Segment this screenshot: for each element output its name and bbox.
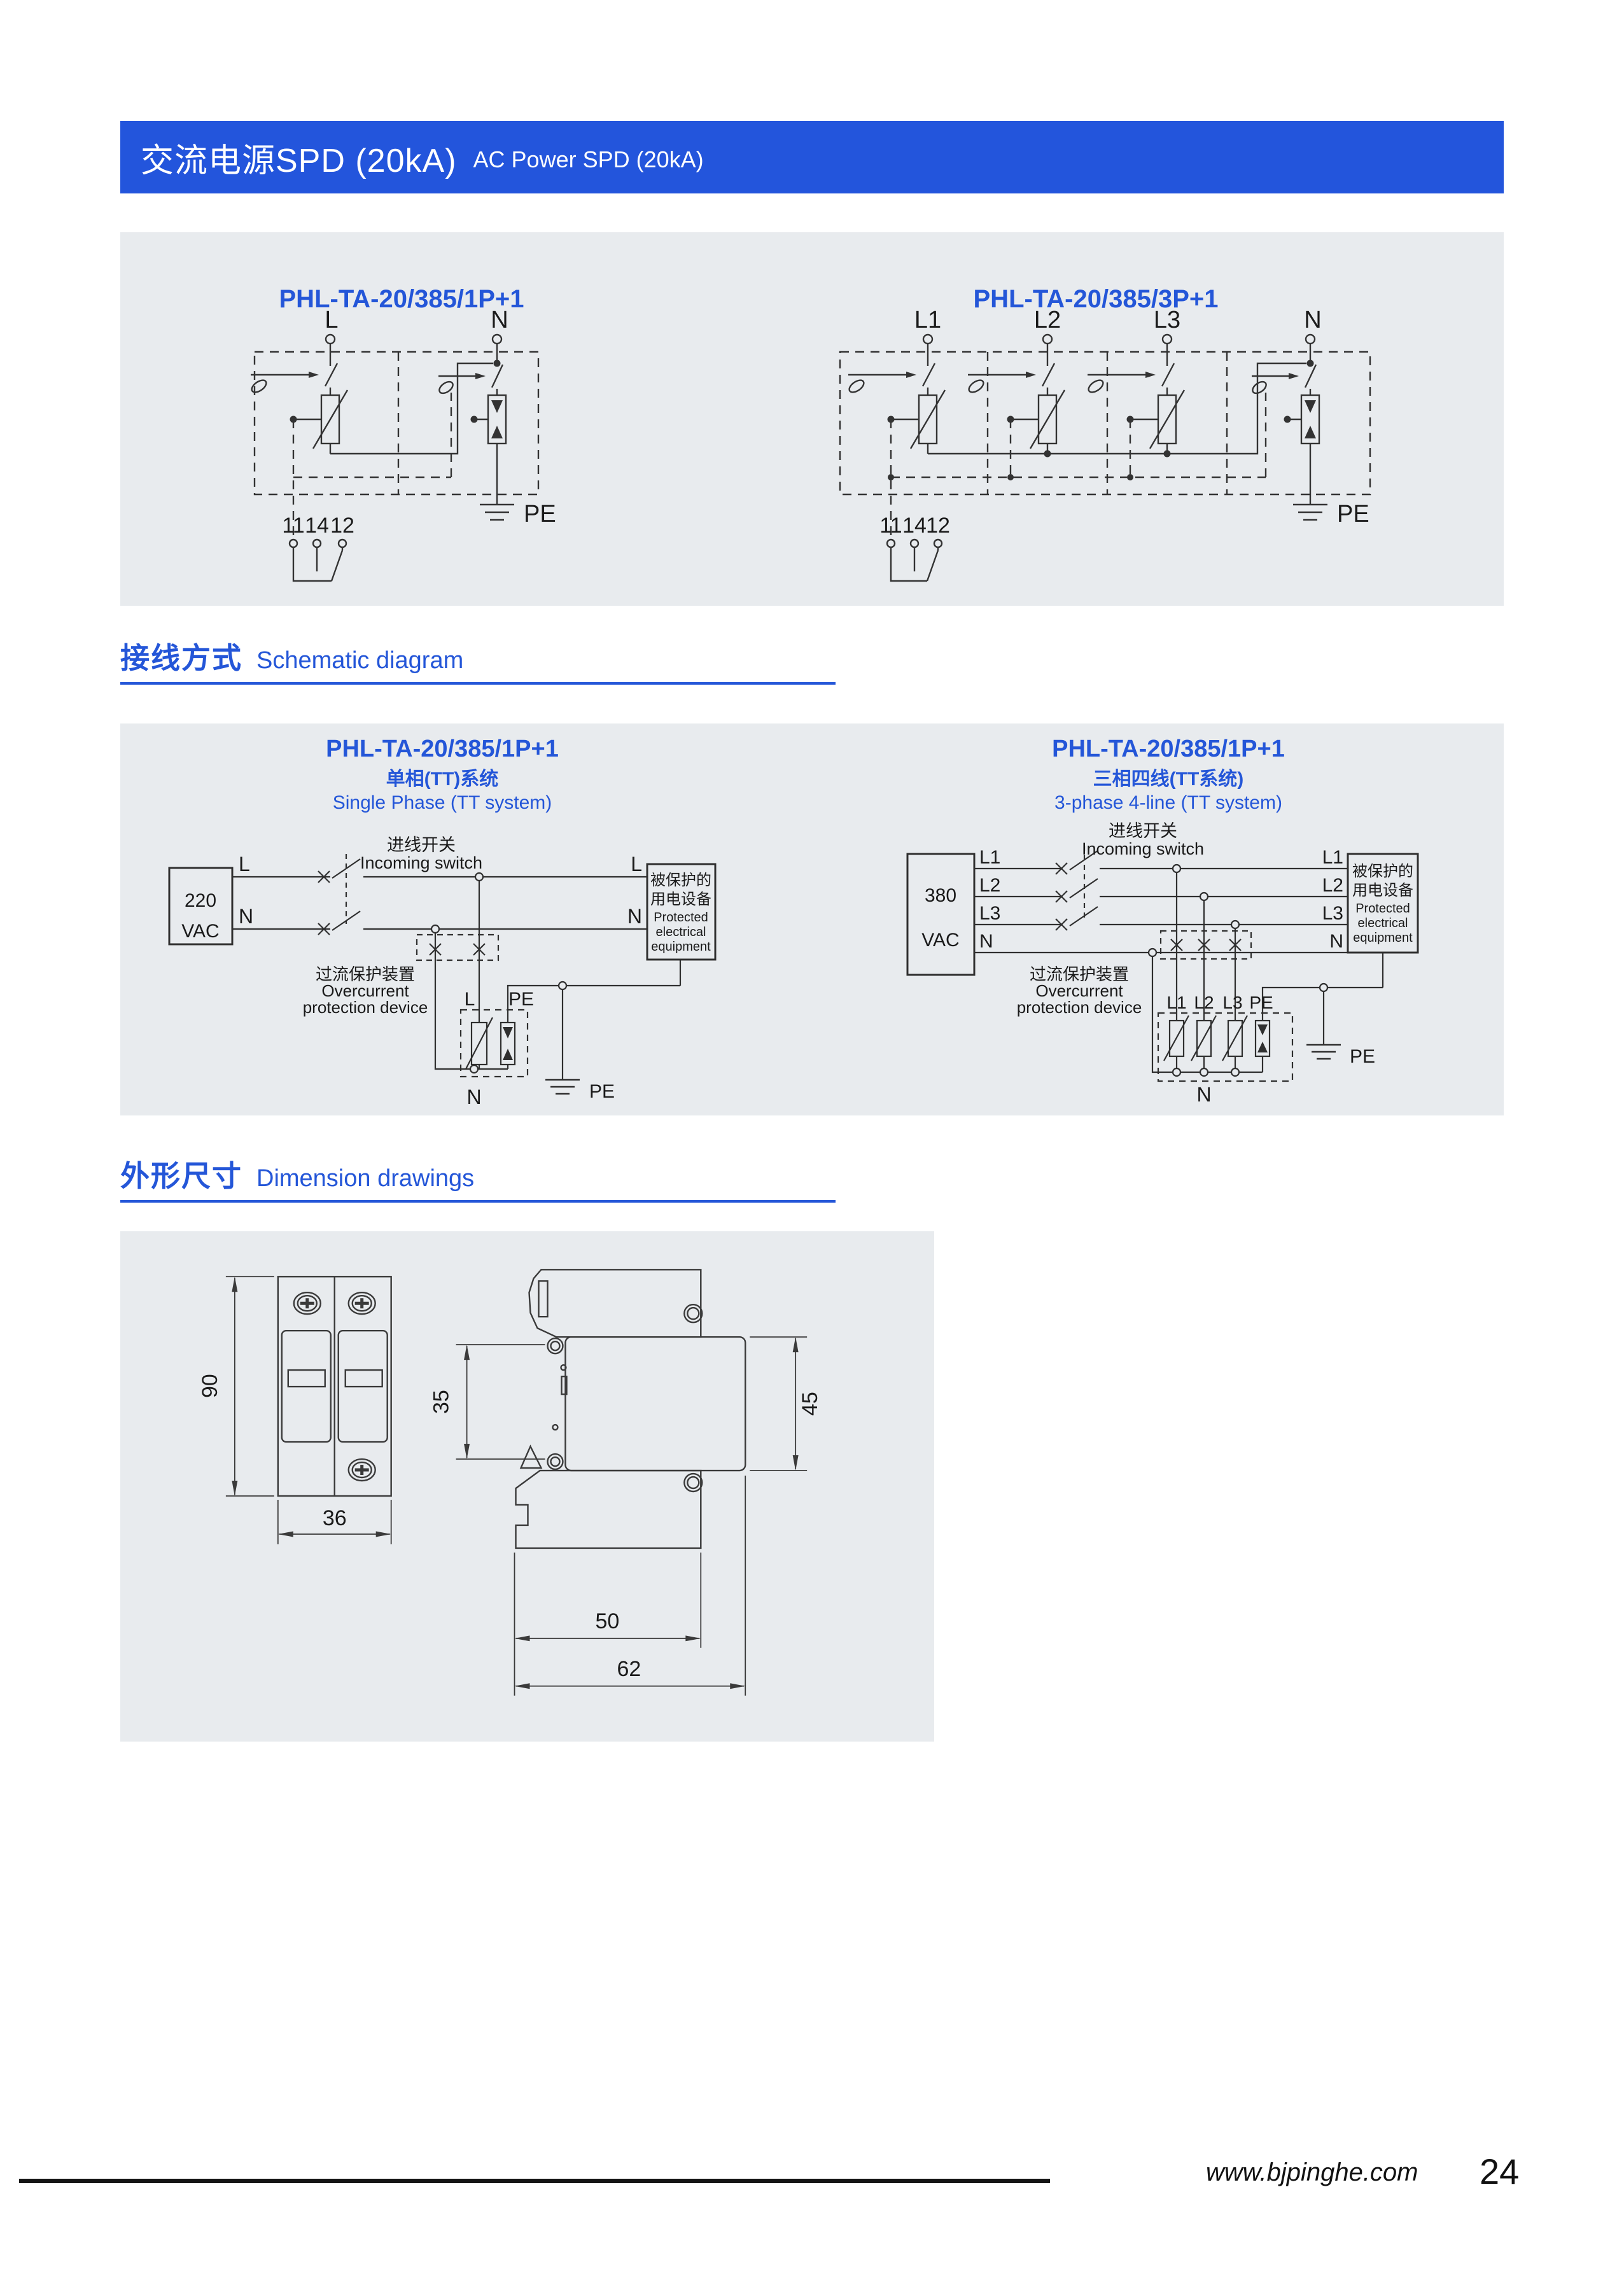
line-l-label-right: L bbox=[631, 853, 642, 876]
line-l1-label: L1 bbox=[979, 847, 1000, 868]
section-wiring-zh: 接线方式 bbox=[120, 635, 242, 677]
source-box bbox=[907, 854, 974, 975]
spd-n-label: N bbox=[1196, 1083, 1211, 1106]
terminal-l1-label: L1 bbox=[914, 307, 941, 333]
protected-en3: equipment bbox=[651, 940, 711, 954]
mov-branch-l2 bbox=[967, 363, 1065, 454]
ground-symbol bbox=[480, 505, 514, 520]
screw-icon bbox=[349, 1459, 375, 1481]
overcurrent-device-box bbox=[417, 935, 498, 960]
schematic1-subtitle-en: Single Phase (TT system) bbox=[333, 792, 552, 813]
dimension-drawing: 90 36 35 45 50 62 bbox=[120, 1231, 934, 1742]
ground-symbol bbox=[1293, 505, 1327, 520]
terminal-n-label: N bbox=[491, 307, 508, 333]
overcurrent-en2: protection device bbox=[303, 998, 428, 1017]
remote-contact bbox=[290, 540, 346, 581]
screw-icon bbox=[294, 1292, 321, 1314]
incoming-switch-en: Incoming switch bbox=[360, 853, 482, 872]
line-n-label-right: N bbox=[1329, 931, 1343, 952]
ground-symbol bbox=[1306, 1045, 1341, 1059]
protected-en1: Protected bbox=[1355, 902, 1410, 916]
spd-l1-label: L1 bbox=[1166, 993, 1186, 1012]
dimension-35 bbox=[456, 1345, 545, 1459]
footer-page-number: 24 bbox=[1480, 2151, 1519, 2192]
dimension-90 bbox=[226, 1276, 274, 1496]
ground-symbol bbox=[545, 1080, 580, 1094]
section-title-dimensions: 外形尺寸 Dimension drawings bbox=[120, 1153, 474, 1195]
source-unit: VAC bbox=[921, 930, 959, 951]
terminal-11-label: 11 bbox=[879, 514, 902, 538]
terminal-14-label: 14 bbox=[305, 514, 329, 538]
page-title-zh: 交流电源SPD (20kA) bbox=[141, 134, 457, 181]
terminal-12-label: 12 bbox=[926, 514, 950, 538]
mov-branch-l3 bbox=[1086, 363, 1184, 454]
spd-l2-label: L2 bbox=[1194, 993, 1214, 1012]
line-n-label: N bbox=[979, 931, 993, 952]
footer-rule bbox=[19, 2179, 1050, 2183]
side-view bbox=[516, 1269, 746, 1548]
protected-en3: equipment bbox=[1353, 931, 1413, 945]
spd-n-label: N bbox=[466, 1086, 481, 1108]
incoming-switch-en: Incoming switch bbox=[1082, 839, 1204, 858]
terminal-l2-label: L2 bbox=[1034, 307, 1061, 333]
dim-side-left-label: 35 bbox=[430, 1390, 454, 1414]
line-n-label: N bbox=[239, 905, 253, 928]
circuit1-title: PHL-TA-20/385/1P+1 bbox=[279, 285, 524, 313]
terminal-l3-label: L3 bbox=[1154, 307, 1180, 333]
footer-website: www.bjpinghe.com bbox=[1206, 2158, 1418, 2187]
spd-pe-label: PE bbox=[508, 989, 534, 1010]
dimension-arrowheads bbox=[232, 1276, 798, 1689]
line-l-label: L bbox=[239, 853, 250, 876]
section-title-wiring: 接线方式 Schematic diagram bbox=[120, 635, 463, 677]
front-view bbox=[278, 1276, 391, 1496]
schematic-panel: PHL-TA-20/385/1P+1 单相(TT)系统 Single Phase… bbox=[120, 723, 1504, 1115]
incoming-switch-zh: 进线开关 bbox=[1109, 821, 1177, 841]
dimension-panel: 90 36 35 45 50 62 bbox=[120, 1231, 934, 1742]
schematic-three-phase: PHL-TA-20/385/1P+1 三相四线(TT系统) 3-phase 4-… bbox=[812, 723, 1504, 1115]
protected-zh1: 被保护的 bbox=[650, 872, 711, 889]
protected-zh2: 用电设备 bbox=[1352, 882, 1413, 899]
page-header-bar: 交流电源SPD (20kA) AC Power SPD (20kA) bbox=[120, 121, 1504, 193]
source-unit: VAC bbox=[181, 921, 219, 942]
pe-label: PE bbox=[1337, 501, 1369, 528]
dim-depth-outer-label: 62 bbox=[617, 1657, 641, 1681]
pe-label: PE bbox=[524, 501, 556, 528]
schematic1-title: PHL-TA-20/385/1P+1 bbox=[326, 736, 559, 762]
terminal-11-label: 11 bbox=[282, 514, 304, 538]
circuit2-title: PHL-TA-20/385/3P+1 bbox=[974, 285, 1219, 313]
page-title-en: AC Power SPD (20kA) bbox=[473, 141, 704, 173]
circuit-diagram-panel: PHL-TA-20/385/1P+1 L N PE 11 14 12 bbox=[120, 232, 1504, 606]
line-l1-label-right: L1 bbox=[1322, 847, 1343, 868]
pe-ground-label: PE bbox=[1350, 1046, 1375, 1067]
line-n-label-right: N bbox=[627, 905, 642, 928]
spd-l-label: L bbox=[465, 989, 475, 1010]
protected-zh2: 用电设备 bbox=[650, 891, 711, 908]
pe-ground-label: PE bbox=[589, 1081, 615, 1102]
screw-icon bbox=[684, 1304, 702, 1492]
schematic2-subtitle-en: 3-phase 4-line (TT system) bbox=[1054, 792, 1282, 813]
screw-icon bbox=[349, 1292, 375, 1314]
dim-side-right-label: 45 bbox=[798, 1392, 822, 1416]
section-rule-wiring bbox=[120, 682, 836, 685]
overcurrent-en2: protection device bbox=[1017, 998, 1142, 1017]
incoming-switch-zh: 进线开关 bbox=[387, 835, 456, 855]
terminal-l-label: L bbox=[325, 307, 338, 333]
gdt-triangles bbox=[503, 1027, 513, 1060]
junction-dots bbox=[888, 360, 1317, 481]
protected-en2: electrical bbox=[656, 925, 706, 939]
terminal-n-label: N bbox=[1304, 307, 1321, 333]
overcurrent-device-box bbox=[1161, 931, 1251, 959]
mov-branch-l1 bbox=[847, 363, 945, 454]
spd-pe-label: PE bbox=[1249, 993, 1273, 1012]
protected-en2: electrical bbox=[1358, 916, 1408, 930]
section-dims-en: Dimension drawings bbox=[256, 1165, 474, 1192]
dim-width-label: 36 bbox=[323, 1506, 347, 1530]
circuit-diagram-3p1: PHL-TA-20/385/3P+1 L1 L2 L3 N PE 11 14 1… bbox=[812, 232, 1504, 606]
source-voltage: 380 bbox=[925, 885, 956, 906]
dim-depth-inner-label: 50 bbox=[596, 1609, 620, 1633]
spd-l3-label: L3 bbox=[1222, 993, 1242, 1012]
section-wiring-en: Schematic diagram bbox=[256, 647, 463, 674]
schematic2-subtitle-zh: 三相四线(TT系统) bbox=[1093, 768, 1244, 790]
hinge-circle bbox=[547, 1338, 563, 1469]
schematic2-title: PHL-TA-20/385/1P+1 bbox=[1052, 736, 1285, 762]
protected-en1: Protected bbox=[654, 911, 708, 925]
gdt-triangles bbox=[1257, 1024, 1268, 1052]
circuit-diagram-1p1: PHL-TA-20/385/1P+1 L N PE 11 14 12 bbox=[120, 232, 812, 606]
datasheet-page: { "header": { "title_zh": "交流电源SPD (20kA… bbox=[0, 0, 1624, 2278]
line-l3-label-right: L3 bbox=[1322, 903, 1343, 924]
source-voltage: 220 bbox=[185, 890, 216, 911]
line-l2-label-right: L2 bbox=[1322, 875, 1343, 896]
line-l3-label: L3 bbox=[979, 903, 1000, 924]
protected-zh1: 被保护的 bbox=[1352, 863, 1413, 880]
remote-contact bbox=[887, 540, 942, 581]
mov-branch bbox=[249, 363, 493, 454]
schematic1-subtitle-zh: 单相(TT)系统 bbox=[386, 768, 499, 790]
section-dims-zh: 外形尺寸 bbox=[120, 1153, 242, 1195]
line-l2-label: L2 bbox=[979, 875, 1000, 896]
schematic-single-phase: PHL-TA-20/385/1P+1 单相(TT)系统 Single Phase… bbox=[120, 723, 812, 1115]
dim-height-label: 90 bbox=[198, 1374, 222, 1398]
section-rule-dimensions bbox=[120, 1200, 836, 1203]
terminal-12-label: 12 bbox=[330, 514, 354, 538]
terminal-14-label: 14 bbox=[902, 514, 927, 538]
